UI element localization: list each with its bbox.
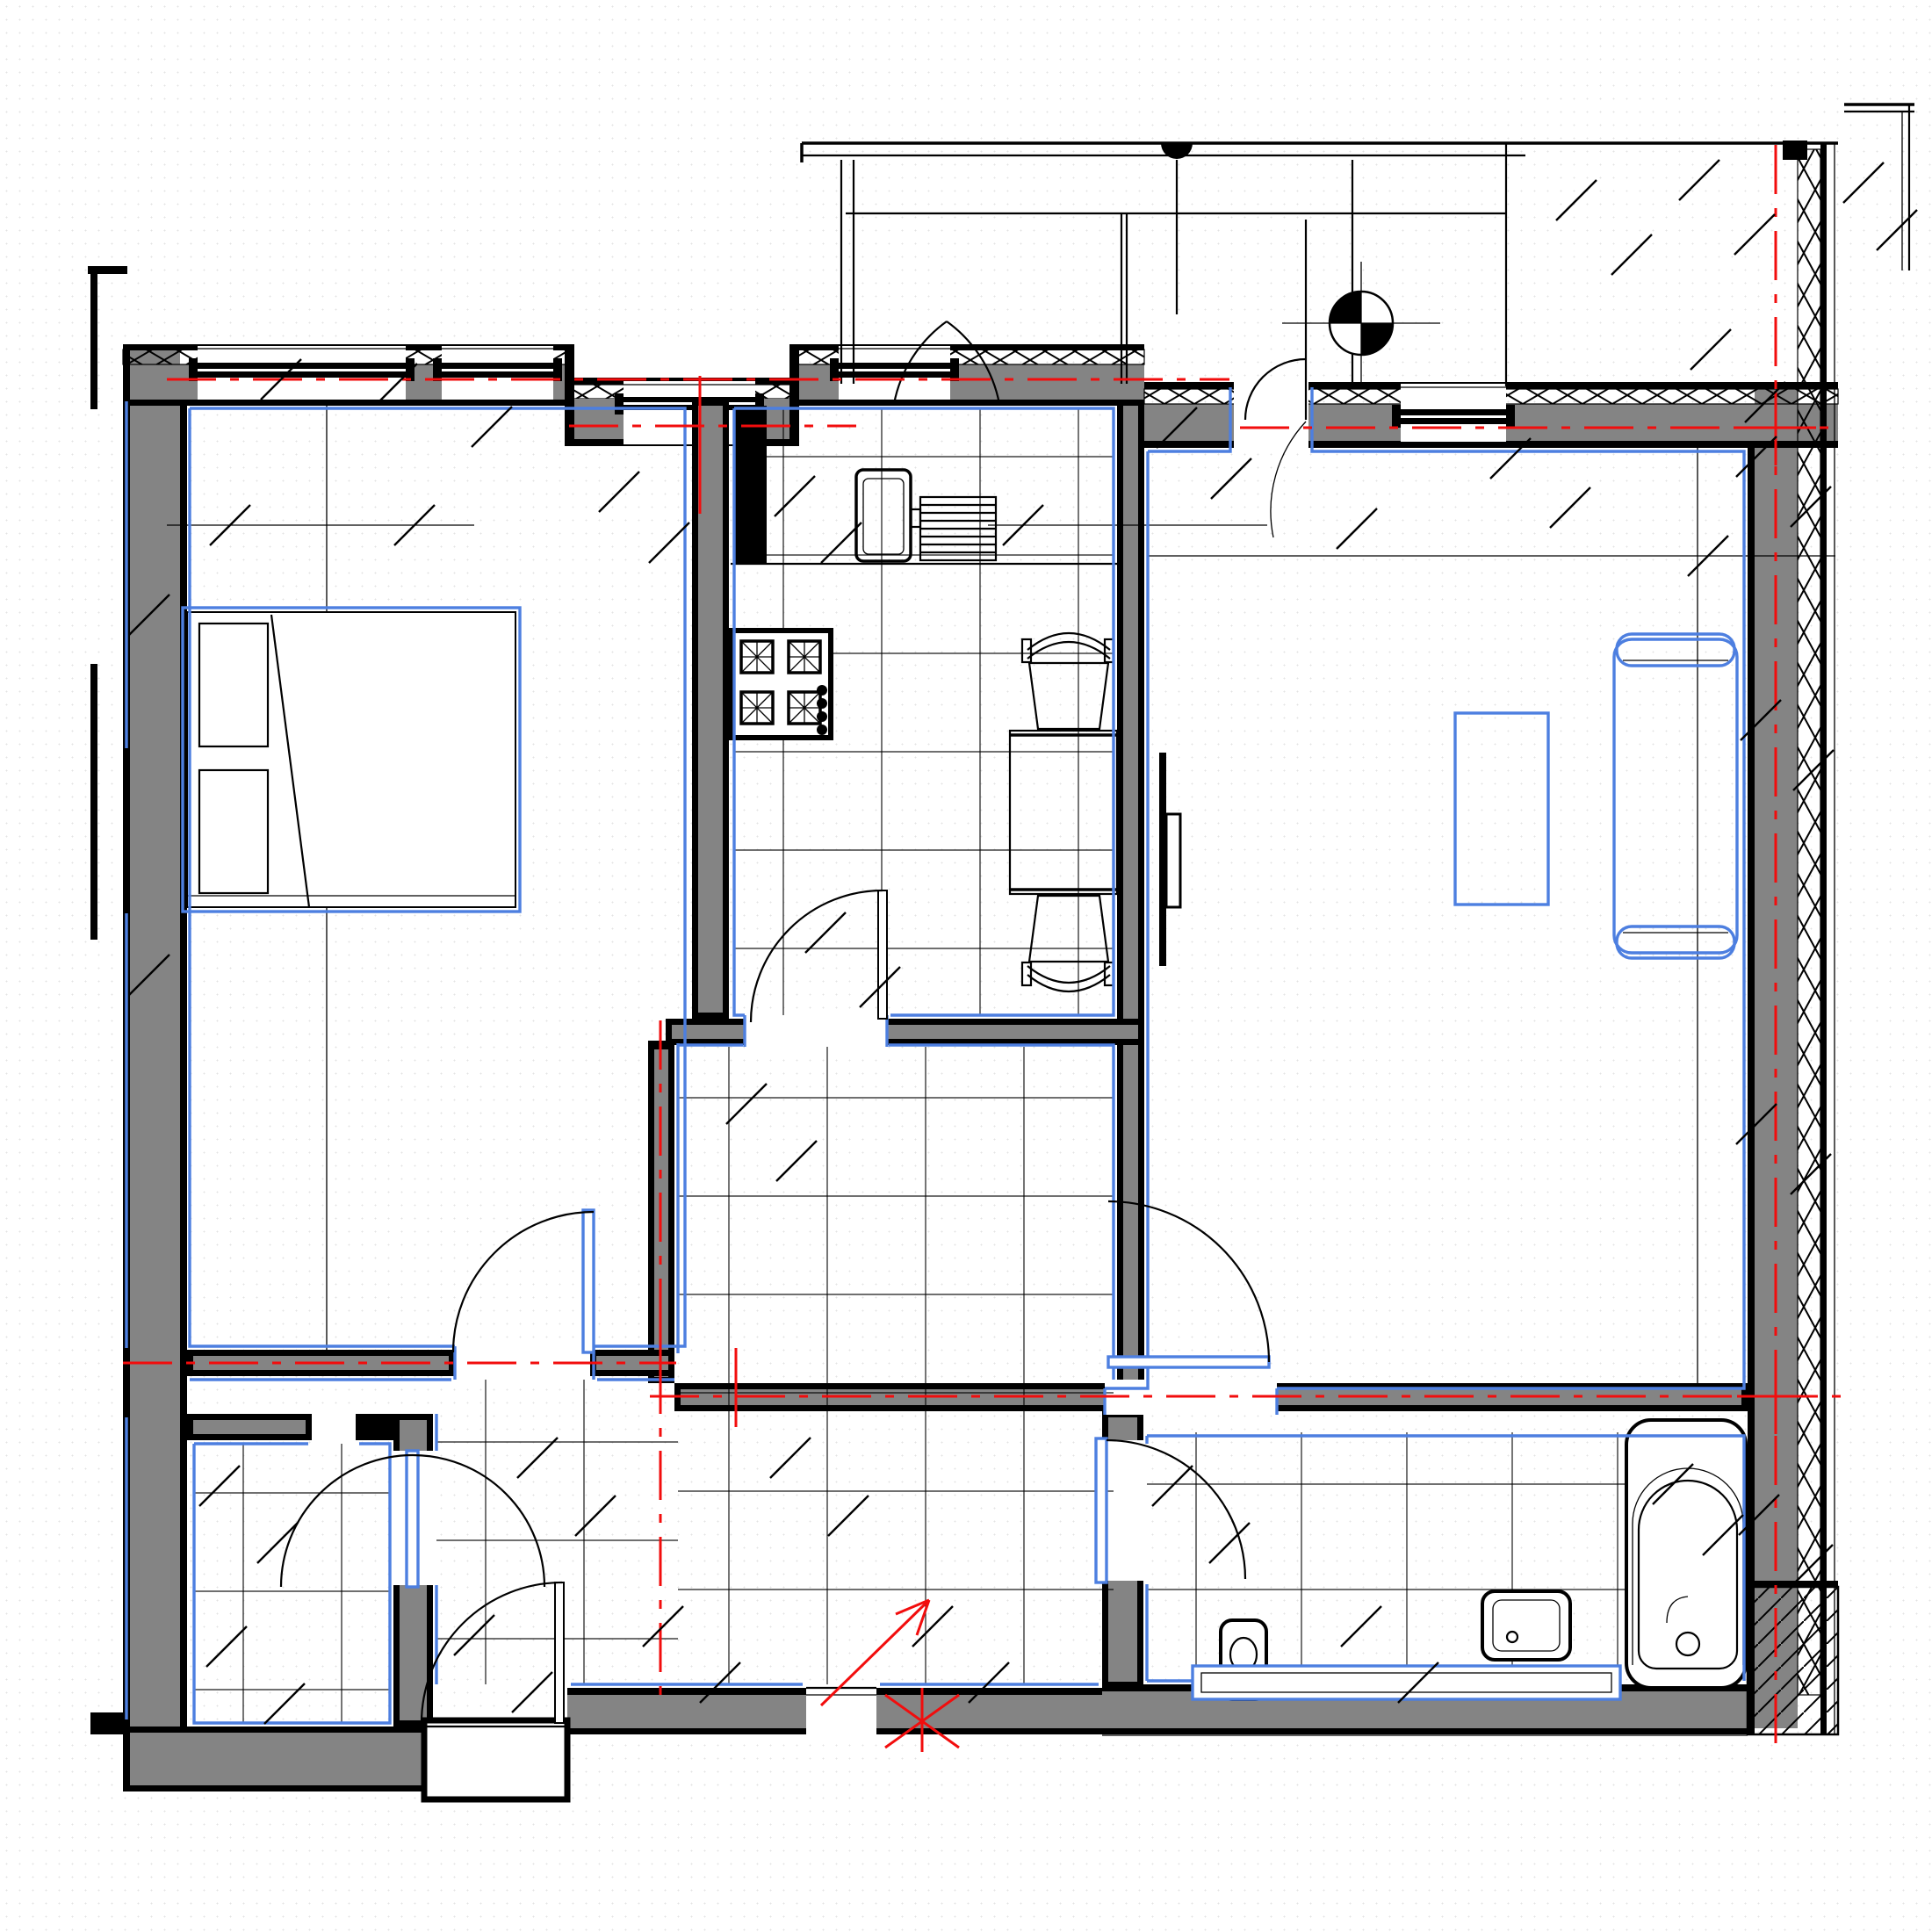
floor-plan-page [0, 0, 1932, 1932]
furniture-bathroom [1221, 1420, 1746, 1699]
tile-grid [678, 1047, 1114, 1684]
furniture-living [1159, 753, 1180, 966]
blue-finish-lines [126, 387, 1744, 1723]
floor-plan-svg [0, 0, 1932, 1932]
furniture-bedroom [187, 612, 515, 907]
survey-symbols [1161, 141, 1807, 385]
furniture-kitchen [731, 470, 1117, 991]
tile-grid [194, 1444, 390, 1723]
